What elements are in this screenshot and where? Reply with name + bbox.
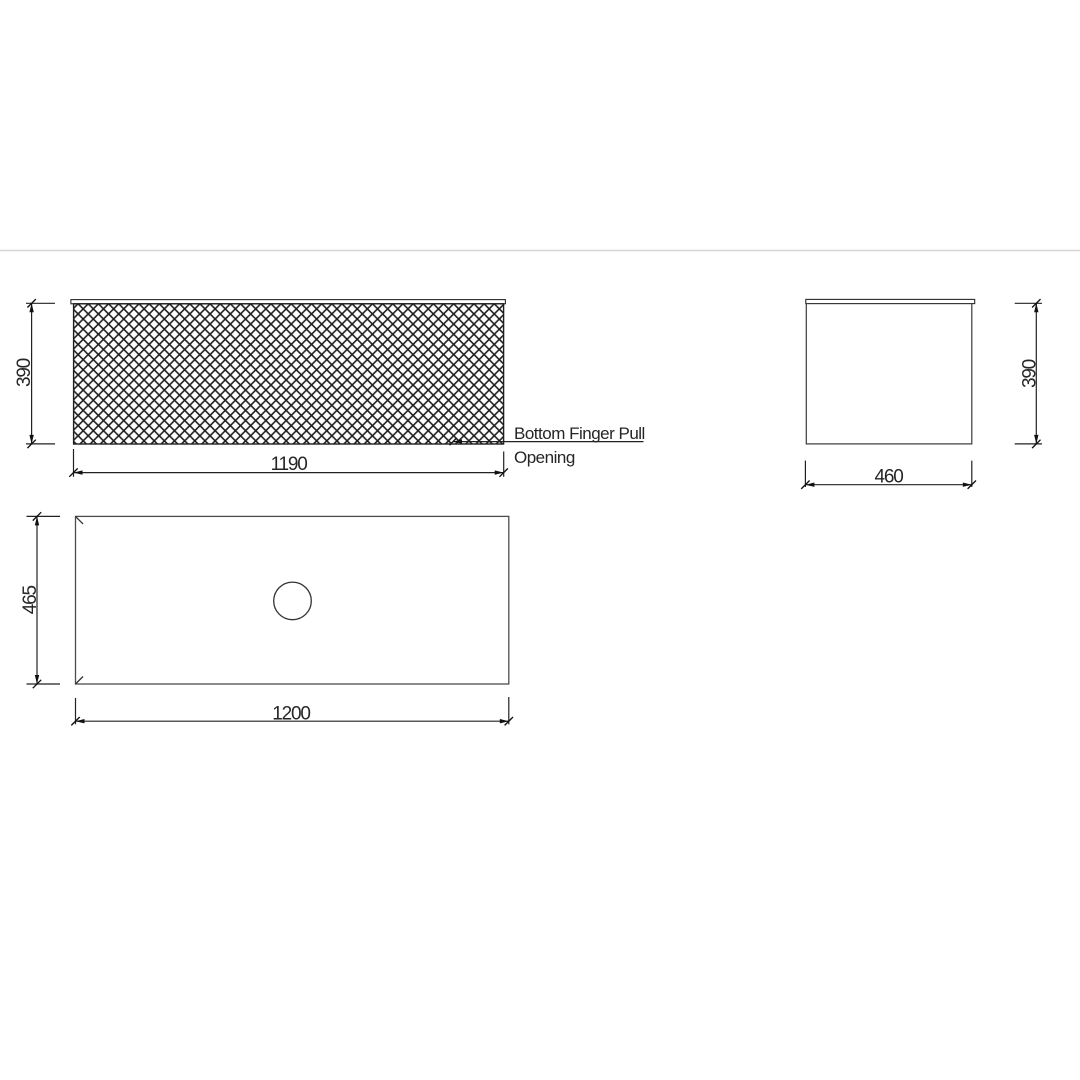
svg-text:460: 460	[875, 467, 904, 488]
svg-text:1200: 1200	[272, 703, 310, 724]
svg-text:Opening: Opening	[514, 448, 575, 467]
svg-text:1190: 1190	[271, 454, 308, 475]
svg-text:390: 390	[1019, 359, 1040, 388]
svg-text:Bottom Finger Pull: Bottom Finger Pull	[514, 424, 645, 443]
svg-text:465: 465	[20, 586, 41, 615]
svg-text:390: 390	[14, 358, 35, 387]
